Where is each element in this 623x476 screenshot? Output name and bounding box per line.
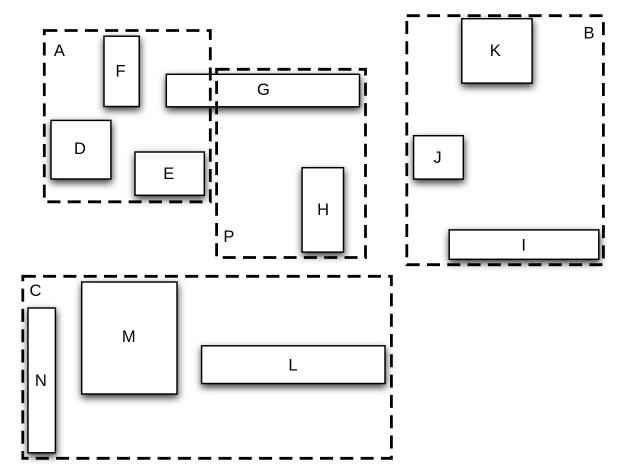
svg-text:D: D <box>74 140 86 158</box>
svg-text:I: I <box>521 237 526 255</box>
svg-text:B: B <box>583 24 594 42</box>
svg-text:K: K <box>490 42 501 60</box>
svg-text:F: F <box>115 63 125 81</box>
svg-text:J: J <box>433 149 441 167</box>
svg-text:G: G <box>257 81 270 99</box>
svg-text:A: A <box>54 42 65 60</box>
svg-text:N: N <box>35 372 47 390</box>
svg-text:C: C <box>30 282 42 300</box>
svg-text:H: H <box>317 201 329 219</box>
svg-text:E: E <box>163 165 174 183</box>
svg-text:P: P <box>223 228 234 246</box>
svg-text:L: L <box>288 356 297 374</box>
svg-text:M: M <box>122 328 136 346</box>
